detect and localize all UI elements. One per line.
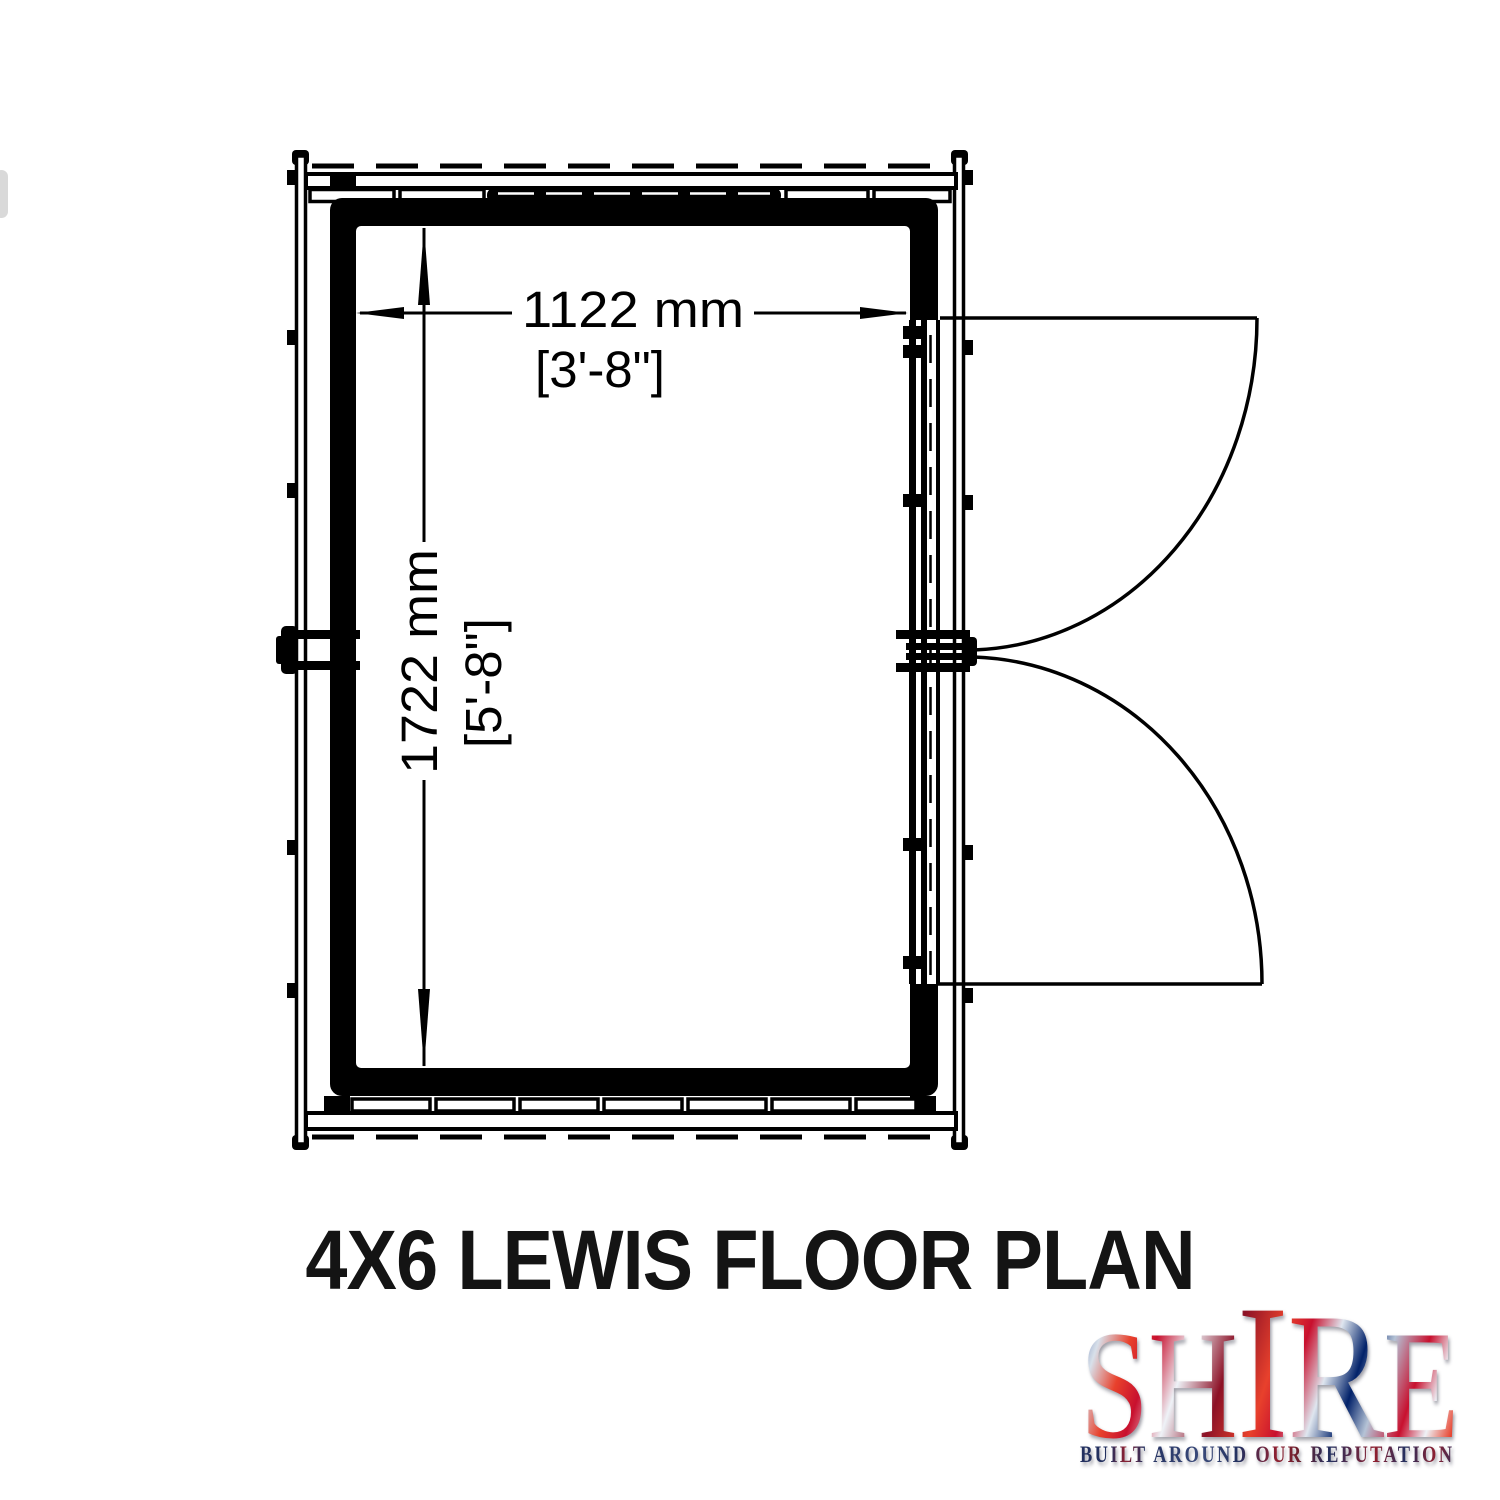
height-dimension-imperial: [5'-8"] [455, 618, 512, 748]
floor-plan-page: 1122 mm [3'-8"] 1722 mm [5'-8"] 4X6 LEWI… [0, 0, 1500, 1500]
shire-logo-tagline: BUILT AROUND OUR REPUTATION [1080, 1443, 1458, 1466]
door-swing-arc-top [974, 318, 1257, 650]
width-dimension-imperial: [3'-8"] [535, 341, 665, 398]
shire-logo: SHIRE BUILT AROUND OUR REPUTATION [1080, 1276, 1458, 1466]
bottom-base-edge [306, 1096, 956, 1137]
page-title-text: 4X6 LEWIS FLOOR PLAN [305, 1218, 1194, 1302]
width-dimension-mm: 1122 mm [522, 281, 744, 338]
door-assembly [896, 318, 1262, 984]
door-swing-arc-bottom [974, 657, 1262, 984]
height-dimension-mm: 1722 mm [391, 549, 448, 774]
shire-logo-word: SHIRE [1080, 1276, 1458, 1469]
